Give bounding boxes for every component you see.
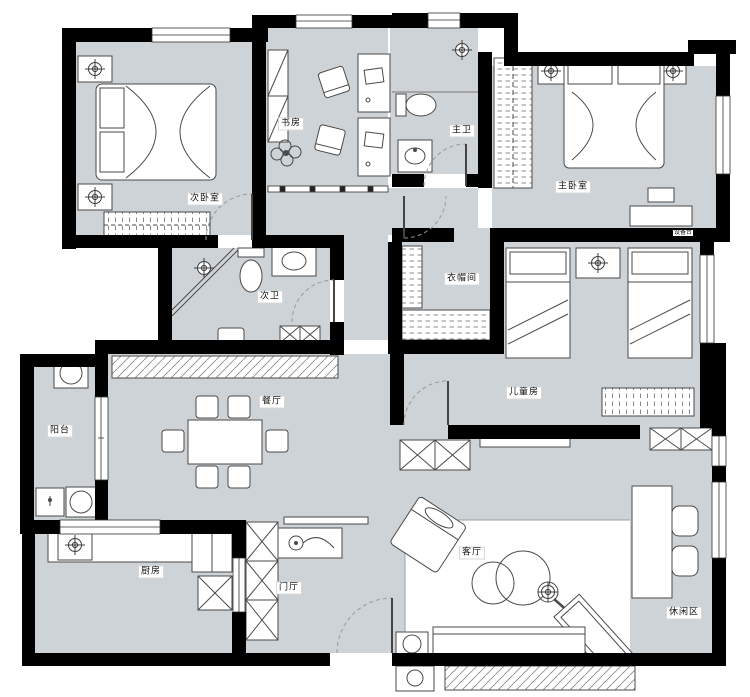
room-label-cloakroom: 衣帽间 bbox=[444, 273, 480, 286]
room-label-study: 书房 bbox=[278, 118, 304, 131]
room-label-dining-room: 餐厅 bbox=[259, 396, 285, 409]
room-label-living-room: 客厅 bbox=[459, 547, 485, 560]
room-label-leisure-area: 休闲区 bbox=[666, 607, 702, 620]
sliding-door-balcony bbox=[95, 397, 108, 480]
window-master-bath-top bbox=[428, 13, 460, 28]
floor-plan-drawing bbox=[0, 0, 750, 697]
room-label-kids-room: 儿童房 bbox=[506, 387, 542, 400]
room-label-master-bedroom: 主卧室 bbox=[555, 181, 591, 194]
window-study-top bbox=[296, 15, 352, 28]
room-label-equipment-platform: 设备台 bbox=[673, 230, 693, 236]
room-label-bedroom2: 次卧室 bbox=[187, 193, 223, 206]
floor-plan: 次卧室 书房 主卫 主卧室 设备台 次卫 衣帽间 儿童房 餐厅 阳台 厨房 门厅… bbox=[0, 0, 750, 697]
glass-partition-study bbox=[268, 186, 388, 192]
window-kids-room-right bbox=[700, 255, 714, 343]
room-label-balcony: 阳台 bbox=[47, 425, 73, 438]
room-label-master-bath: 主卫 bbox=[449, 125, 475, 138]
sliding-door-kitchen bbox=[233, 558, 245, 612]
window-bedroom2-top bbox=[152, 28, 230, 42]
room-label-kitchen: 厨房 bbox=[138, 566, 164, 579]
window-master-bedroom-right bbox=[716, 96, 730, 174]
pass-window-kitchen bbox=[60, 520, 160, 534]
window-leisure-right-2 bbox=[712, 482, 726, 558]
window-leisure-right-1 bbox=[712, 436, 726, 466]
room-label-foyer: 门厅 bbox=[276, 582, 302, 595]
exterior-platform bbox=[396, 666, 635, 691]
room-label-bath2: 次卫 bbox=[257, 291, 283, 304]
